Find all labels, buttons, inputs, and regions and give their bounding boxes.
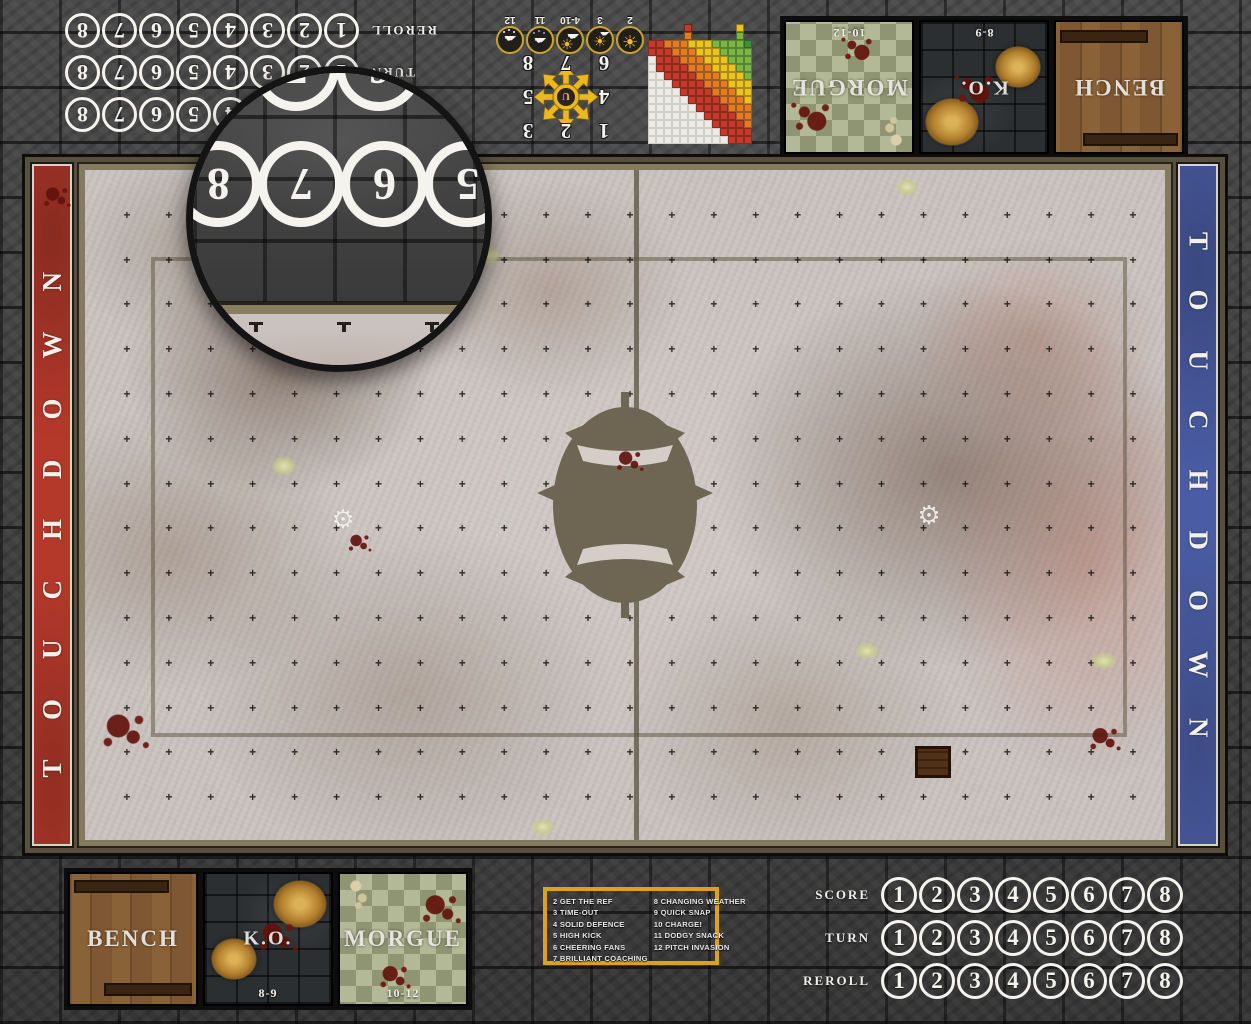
range-cell (712, 72, 720, 80)
grid-cross-mark: + (878, 790, 885, 804)
range-cell (736, 128, 744, 136)
number-token: 3 (957, 963, 993, 999)
range-cell (712, 88, 720, 96)
range-cell (680, 40, 688, 48)
weather-track: ☀2☀☁3☀☁4-10☁11☁12 (495, 14, 645, 54)
bench-box: BENCH (1054, 20, 1184, 154)
grid-cross-mark: + (668, 701, 675, 715)
grid-cross-mark: + (920, 477, 927, 491)
grid-cross-mark: + (920, 208, 927, 222)
range-cell (680, 48, 688, 56)
number-token: 3 (957, 877, 993, 913)
grid-cross-mark: + (1130, 477, 1137, 491)
grid-cross-mark: + (375, 701, 382, 715)
grid-cross-mark: + (962, 656, 969, 670)
grid-cross-mark: + (1004, 745, 1011, 759)
grid-cross-mark: + (710, 701, 717, 715)
grid-cross-mark: + (459, 745, 466, 759)
weather-value: 2 (627, 14, 633, 25)
grid-cross-mark: + (668, 745, 675, 759)
range-cell (672, 104, 680, 112)
number-token: 8 (1147, 920, 1183, 956)
number-token: 5 (1033, 963, 1069, 999)
range-cell (736, 64, 744, 72)
number-token: 7 (102, 97, 137, 132)
grid-cross-mark: + (417, 432, 424, 446)
range-cell (704, 88, 712, 96)
range-cell (680, 72, 688, 80)
number-token: 4 (995, 963, 1031, 999)
grid-cross-mark: + (459, 656, 466, 670)
touchdown-text-left: TOUCHDOWN (37, 232, 68, 778)
grid-cross-mark: + (710, 745, 717, 759)
grid-cross-mark: + (752, 745, 759, 759)
grid-tick-mark (249, 322, 263, 325)
grid-cross-mark: + (291, 790, 298, 804)
blood-splatter (1085, 722, 1123, 756)
range-cell (664, 72, 672, 80)
range-cell (728, 136, 736, 144)
grid-cross-mark: + (1046, 253, 1053, 267)
range-cell (664, 40, 672, 48)
range-cell (696, 128, 704, 136)
range-cell (712, 104, 720, 112)
grid-cross-mark: + (668, 790, 675, 804)
grid-cross-mark: + (291, 477, 298, 491)
grid-cross-mark: + (1046, 701, 1053, 715)
grid-cross-mark: + (962, 790, 969, 804)
grid-cross-mark: + (459, 387, 466, 401)
range-cell (720, 104, 728, 112)
grid-cross-mark: + (962, 432, 969, 446)
kickoff-event: 12 PITCH INVASION (654, 942, 746, 953)
bench-box: BENCH (68, 872, 198, 1006)
grid-cross-mark: + (794, 745, 801, 759)
range-cell (656, 96, 664, 104)
number-token: 4 (995, 920, 1031, 956)
range-cell (680, 96, 688, 104)
grid-cross-mark: + (375, 432, 382, 446)
lichen-patch (855, 642, 879, 660)
grid-tick-mark (337, 322, 351, 325)
ko-label: K.O. (205, 928, 331, 951)
grid-cross-mark: + (626, 656, 633, 670)
range-cell (704, 104, 712, 112)
tracker-row-label: SCORE (790, 887, 870, 903)
grid-cross-mark: + (836, 297, 843, 311)
range-cell (704, 112, 712, 120)
range-cell (672, 88, 680, 96)
grid-cross-mark: + (752, 432, 759, 446)
range-cell (680, 80, 688, 88)
grid-cross-mark: + (375, 611, 382, 625)
grid-cross-mark: + (710, 297, 717, 311)
grid-cross-mark: + (501, 253, 508, 267)
grid-cross-mark: + (878, 253, 885, 267)
lichen-patch (271, 456, 297, 476)
grid-cross-mark: + (1046, 790, 1053, 804)
grid-cross-mark: + (459, 790, 466, 804)
grid-cross-mark: + (626, 208, 633, 222)
range-cell (656, 40, 664, 48)
range-cell (744, 48, 752, 56)
range-cell (720, 96, 728, 104)
number-token: 2 (919, 920, 955, 956)
bench-board (1060, 30, 1148, 43)
range-cell (696, 112, 704, 120)
range-cell (680, 128, 688, 136)
grid-cross-mark: + (1130, 387, 1137, 401)
grid-cross-mark: + (710, 208, 717, 222)
number-token: 4 (213, 13, 248, 48)
range-cell (672, 48, 680, 56)
grid-cross-mark: + (752, 701, 759, 715)
grid-cross-mark: + (1130, 790, 1137, 804)
sun-icon: ☀ (616, 26, 644, 54)
grid-cross-mark: + (249, 521, 256, 535)
grid-cross-mark: + (585, 745, 592, 759)
range-cell (712, 136, 720, 144)
range-cell (672, 128, 680, 136)
grid-cross-mark: + (1088, 701, 1095, 715)
grid-cross-mark: + (1088, 297, 1095, 311)
grid-cross-mark: + (501, 342, 508, 356)
grid-cross-mark: + (585, 656, 592, 670)
lichen-patch (531, 818, 555, 836)
blood-splatter (788, 96, 836, 138)
grid-cross-mark: + (752, 790, 759, 804)
detail-magnifier-inset: 76 8765 (186, 66, 492, 372)
weather-scatter-panel-player2: U 12345678 ☀2☀☁3☀☁4-10☁11☁12 (495, 8, 645, 158)
range-cell (704, 56, 712, 64)
number-token: 7 (102, 13, 137, 48)
grid-cross-mark: + (1004, 656, 1011, 670)
range-cell (648, 48, 656, 56)
grid-cross-mark: + (291, 611, 298, 625)
range-cell (704, 120, 712, 128)
legend-swatch (684, 32, 692, 40)
morgue-box: MORGUE 10-12 (338, 872, 468, 1006)
range-cell (648, 64, 656, 72)
grid-cross-mark: + (1046, 656, 1053, 670)
grid-cross-mark: + (1130, 253, 1137, 267)
grid-cross-mark: + (543, 297, 550, 311)
weather-value: 11 (535, 14, 546, 25)
range-cell (736, 72, 744, 80)
range-cell (664, 96, 672, 104)
gear-icon: ⚙ (917, 501, 940, 531)
grid-cross-mark: + (333, 432, 340, 446)
range-cell (696, 64, 704, 72)
scatter-direction-numbers: 12345678 (509, 46, 623, 148)
skeleton-marker (348, 880, 374, 910)
range-cell (712, 128, 720, 136)
grid-cross-mark: + (1046, 342, 1053, 356)
kickoff-events-left-column: 2 GET THE REF3 TIME-OUT4 SOLID DEFENCE5 … (553, 896, 648, 956)
grid-cross-mark: + (1046, 432, 1053, 446)
grid-cross-mark: + (1046, 611, 1053, 625)
range-cell (648, 112, 656, 120)
range-cell (696, 72, 704, 80)
kickoff-event: 6 CHEERING FANS (553, 942, 648, 953)
grid-cross-mark: + (962, 387, 969, 401)
number-token: 6 (139, 13, 174, 48)
range-cell (696, 88, 704, 96)
range-cell (688, 56, 696, 64)
range-cell (744, 112, 752, 120)
range-cell (680, 88, 688, 96)
grid-cross-mark: + (501, 521, 508, 535)
range-cell (672, 40, 680, 48)
range-cell (664, 128, 672, 136)
scatter-number: 1 (585, 114, 623, 148)
range-cell (744, 88, 752, 96)
weather-item: ☁11 (525, 14, 555, 54)
grid-cross-mark: + (165, 611, 172, 625)
legend-swatch (684, 24, 692, 32)
grid-cross-mark: + (1088, 521, 1095, 535)
grid-cross-mark: + (165, 790, 172, 804)
number-token: 2 (919, 963, 955, 999)
grid-cross-mark: + (1130, 342, 1137, 356)
morgue-range: 10-12 (786, 25, 912, 40)
grid-cross-mark: + (123, 253, 130, 267)
grid-cross-mark: + (123, 432, 130, 446)
grid-cross-mark: + (165, 208, 172, 222)
grid-cross-mark: + (794, 477, 801, 491)
grid-cross-mark: + (962, 701, 969, 715)
grid-cross-mark: + (962, 253, 969, 267)
grid-cross-mark: + (585, 701, 592, 715)
range-cell (656, 56, 664, 64)
grid-cross-mark: + (794, 432, 801, 446)
grid-cross-mark: + (207, 432, 214, 446)
grid-cross-mark: + (123, 521, 130, 535)
range-cell (744, 56, 752, 64)
number-token: 1 (324, 13, 359, 48)
grid-cross-mark: + (333, 611, 340, 625)
range-cell (648, 120, 656, 128)
grid-cross-mark: + (585, 253, 592, 267)
grid-cross-mark: + (626, 745, 633, 759)
magnifier-stone-texture: 76 8765 (193, 73, 485, 305)
range-cell (648, 72, 656, 80)
range-cell (736, 80, 744, 88)
grid-cross-mark: + (752, 477, 759, 491)
range-cell (664, 112, 672, 120)
range-cell (712, 40, 720, 48)
range-cell (688, 104, 696, 112)
grid-cross-mark: + (417, 387, 424, 401)
pass-range-chart (648, 24, 758, 144)
grid-cross-mark: + (794, 790, 801, 804)
grid-cross-mark: + (794, 611, 801, 625)
grid-cross-mark: + (459, 611, 466, 625)
range-cell (672, 96, 680, 104)
grid-cross-mark: + (962, 611, 969, 625)
grid-cross-mark: + (1004, 477, 1011, 491)
kickoff-event: 11 DODGY SNACK (654, 930, 746, 941)
number-token: 8 (1147, 963, 1183, 999)
range-cell (720, 128, 728, 136)
range-cell (704, 136, 712, 144)
grid-cross-mark: + (962, 208, 969, 222)
grid-cross-mark: + (1130, 566, 1137, 580)
dugout-player2: BENCH K.O. 8-9 MORGUE 10-12 (780, 16, 1188, 158)
cloud-sun-icon: ☀☁ (556, 26, 584, 54)
range-cell (712, 80, 720, 88)
range-cell (680, 120, 688, 128)
blood-splatter (95, 706, 153, 756)
weather-item: ☀☁3 (585, 14, 615, 54)
range-cell (736, 88, 744, 96)
range-cell (720, 88, 728, 96)
range-cell (672, 72, 680, 80)
range-cell (744, 72, 752, 80)
range-cell (648, 88, 656, 96)
grid-cross-mark: + (1004, 342, 1011, 356)
range-cell (688, 96, 696, 104)
blood-splatter (612, 446, 646, 475)
kickoff-event: 10 CHARGE! (654, 919, 746, 930)
number-token: 8 (65, 55, 100, 90)
range-cell (728, 48, 736, 56)
grid-cross-mark: + (291, 521, 298, 535)
magnified-number-token (419, 66, 492, 111)
grid-cross-mark: + (123, 790, 130, 804)
range-cell (680, 136, 688, 144)
range-cell (656, 136, 664, 144)
grid-cross-mark: + (1004, 297, 1011, 311)
grid-cross-mark: + (836, 656, 843, 670)
range-cell (696, 136, 704, 144)
grid-cross-mark: + (1004, 611, 1011, 625)
range-cell (736, 56, 744, 64)
range-cell (680, 56, 688, 64)
grid-cross-mark: + (1130, 701, 1137, 715)
magnifier-field-texture (193, 314, 485, 372)
grid-cross-mark: + (1088, 432, 1095, 446)
grid-cross-mark: + (836, 790, 843, 804)
grid-cross-mark: + (417, 701, 424, 715)
grid-cross-mark: + (333, 477, 340, 491)
grid-cross-mark: + (123, 342, 130, 356)
blood-splatter (39, 182, 73, 211)
number-token: 2 (287, 13, 322, 48)
tracker-row-label: TURN (790, 930, 870, 946)
range-cell (704, 80, 712, 88)
grid-cross-mark: + (207, 521, 214, 535)
kickoff-events-right-column: 8 CHANGING WEATHER9 QUICK SNAP10 CHARGE!… (654, 896, 746, 956)
range-cell (656, 112, 664, 120)
range-cell (728, 128, 736, 136)
grid-cross-mark: + (249, 611, 256, 625)
grid-cross-mark: + (207, 387, 214, 401)
range-cell (688, 128, 696, 136)
grid-cross-mark: + (249, 656, 256, 670)
grid-cross-mark: + (123, 297, 130, 311)
tracker-row-label: REROLL (370, 23, 450, 39)
ko-box: K.O. 8-9 (203, 872, 333, 1006)
grid-cross-mark: + (1004, 432, 1011, 446)
range-cell (680, 64, 688, 72)
magnified-number-token: 7 (253, 66, 339, 111)
grid-cross-mark: + (123, 208, 130, 222)
number-token: 6 (139, 55, 174, 90)
grid-cross-mark: + (668, 297, 675, 311)
grid-cross-mark: + (291, 566, 298, 580)
range-cell (712, 56, 720, 64)
grid-cross-mark: + (836, 208, 843, 222)
ko-range: 8-9 (921, 25, 1047, 40)
grid-cross-mark: + (291, 432, 298, 446)
range-cell (712, 96, 720, 104)
grid-cross-mark: + (333, 745, 340, 759)
grid-cross-mark: + (1130, 745, 1137, 759)
grid-cross-mark: + (585, 790, 592, 804)
range-cell (728, 56, 736, 64)
grid-cross-mark: + (920, 566, 927, 580)
range-cell (664, 104, 672, 112)
range-cell (704, 64, 712, 72)
range-cell (712, 120, 720, 128)
grid-cross-mark: + (417, 521, 424, 535)
grid-cross-mark: + (626, 790, 633, 804)
number-token: 8 (65, 97, 100, 132)
grid-cross-mark: + (165, 521, 172, 535)
sun-small-cloud-icon: ☀☁ (586, 26, 614, 54)
range-cell (680, 112, 688, 120)
grid-cross-mark: + (626, 701, 633, 715)
range-cell (656, 64, 664, 72)
grid-cross-mark: + (752, 208, 759, 222)
range-cell (720, 112, 728, 120)
number-token: 6 (139, 97, 174, 132)
range-cell (728, 88, 736, 96)
grid-cross-mark: + (1004, 521, 1011, 535)
grid-cross-mark: + (920, 701, 927, 715)
grid-cross-mark: + (165, 477, 172, 491)
grid-cross-mark: + (836, 521, 843, 535)
bench-board (74, 880, 169, 893)
range-cell (672, 112, 680, 120)
grid-cross-mark: + (501, 566, 508, 580)
grid-cross-mark: + (794, 208, 801, 222)
tracker-row: SCORE12345678 (790, 876, 1184, 914)
range-cell (688, 136, 696, 144)
range-cell (744, 80, 752, 88)
range-cell (688, 80, 696, 88)
grid-cross-mark: + (1088, 790, 1095, 804)
range-cell (744, 128, 752, 136)
range-cell (688, 88, 696, 96)
range-cell (688, 120, 696, 128)
kickoff-event: 9 QUICK SNAP (654, 907, 746, 918)
grid-cross-mark: + (375, 745, 382, 759)
grid-cross-mark: + (920, 253, 927, 267)
grid-cross-mark: + (249, 701, 256, 715)
scatter-number: 4 (585, 80, 623, 114)
range-cell (688, 72, 696, 80)
grid-cross-mark: + (1088, 566, 1095, 580)
grid-cross-mark: + (291, 701, 298, 715)
grid-cross-mark: + (794, 387, 801, 401)
grid-cross-mark: + (333, 566, 340, 580)
grid-cross-mark: + (123, 611, 130, 625)
magnified-number-token: 7 (258, 141, 344, 227)
range-cell (728, 120, 736, 128)
grid-cross-mark: + (1130, 208, 1137, 222)
